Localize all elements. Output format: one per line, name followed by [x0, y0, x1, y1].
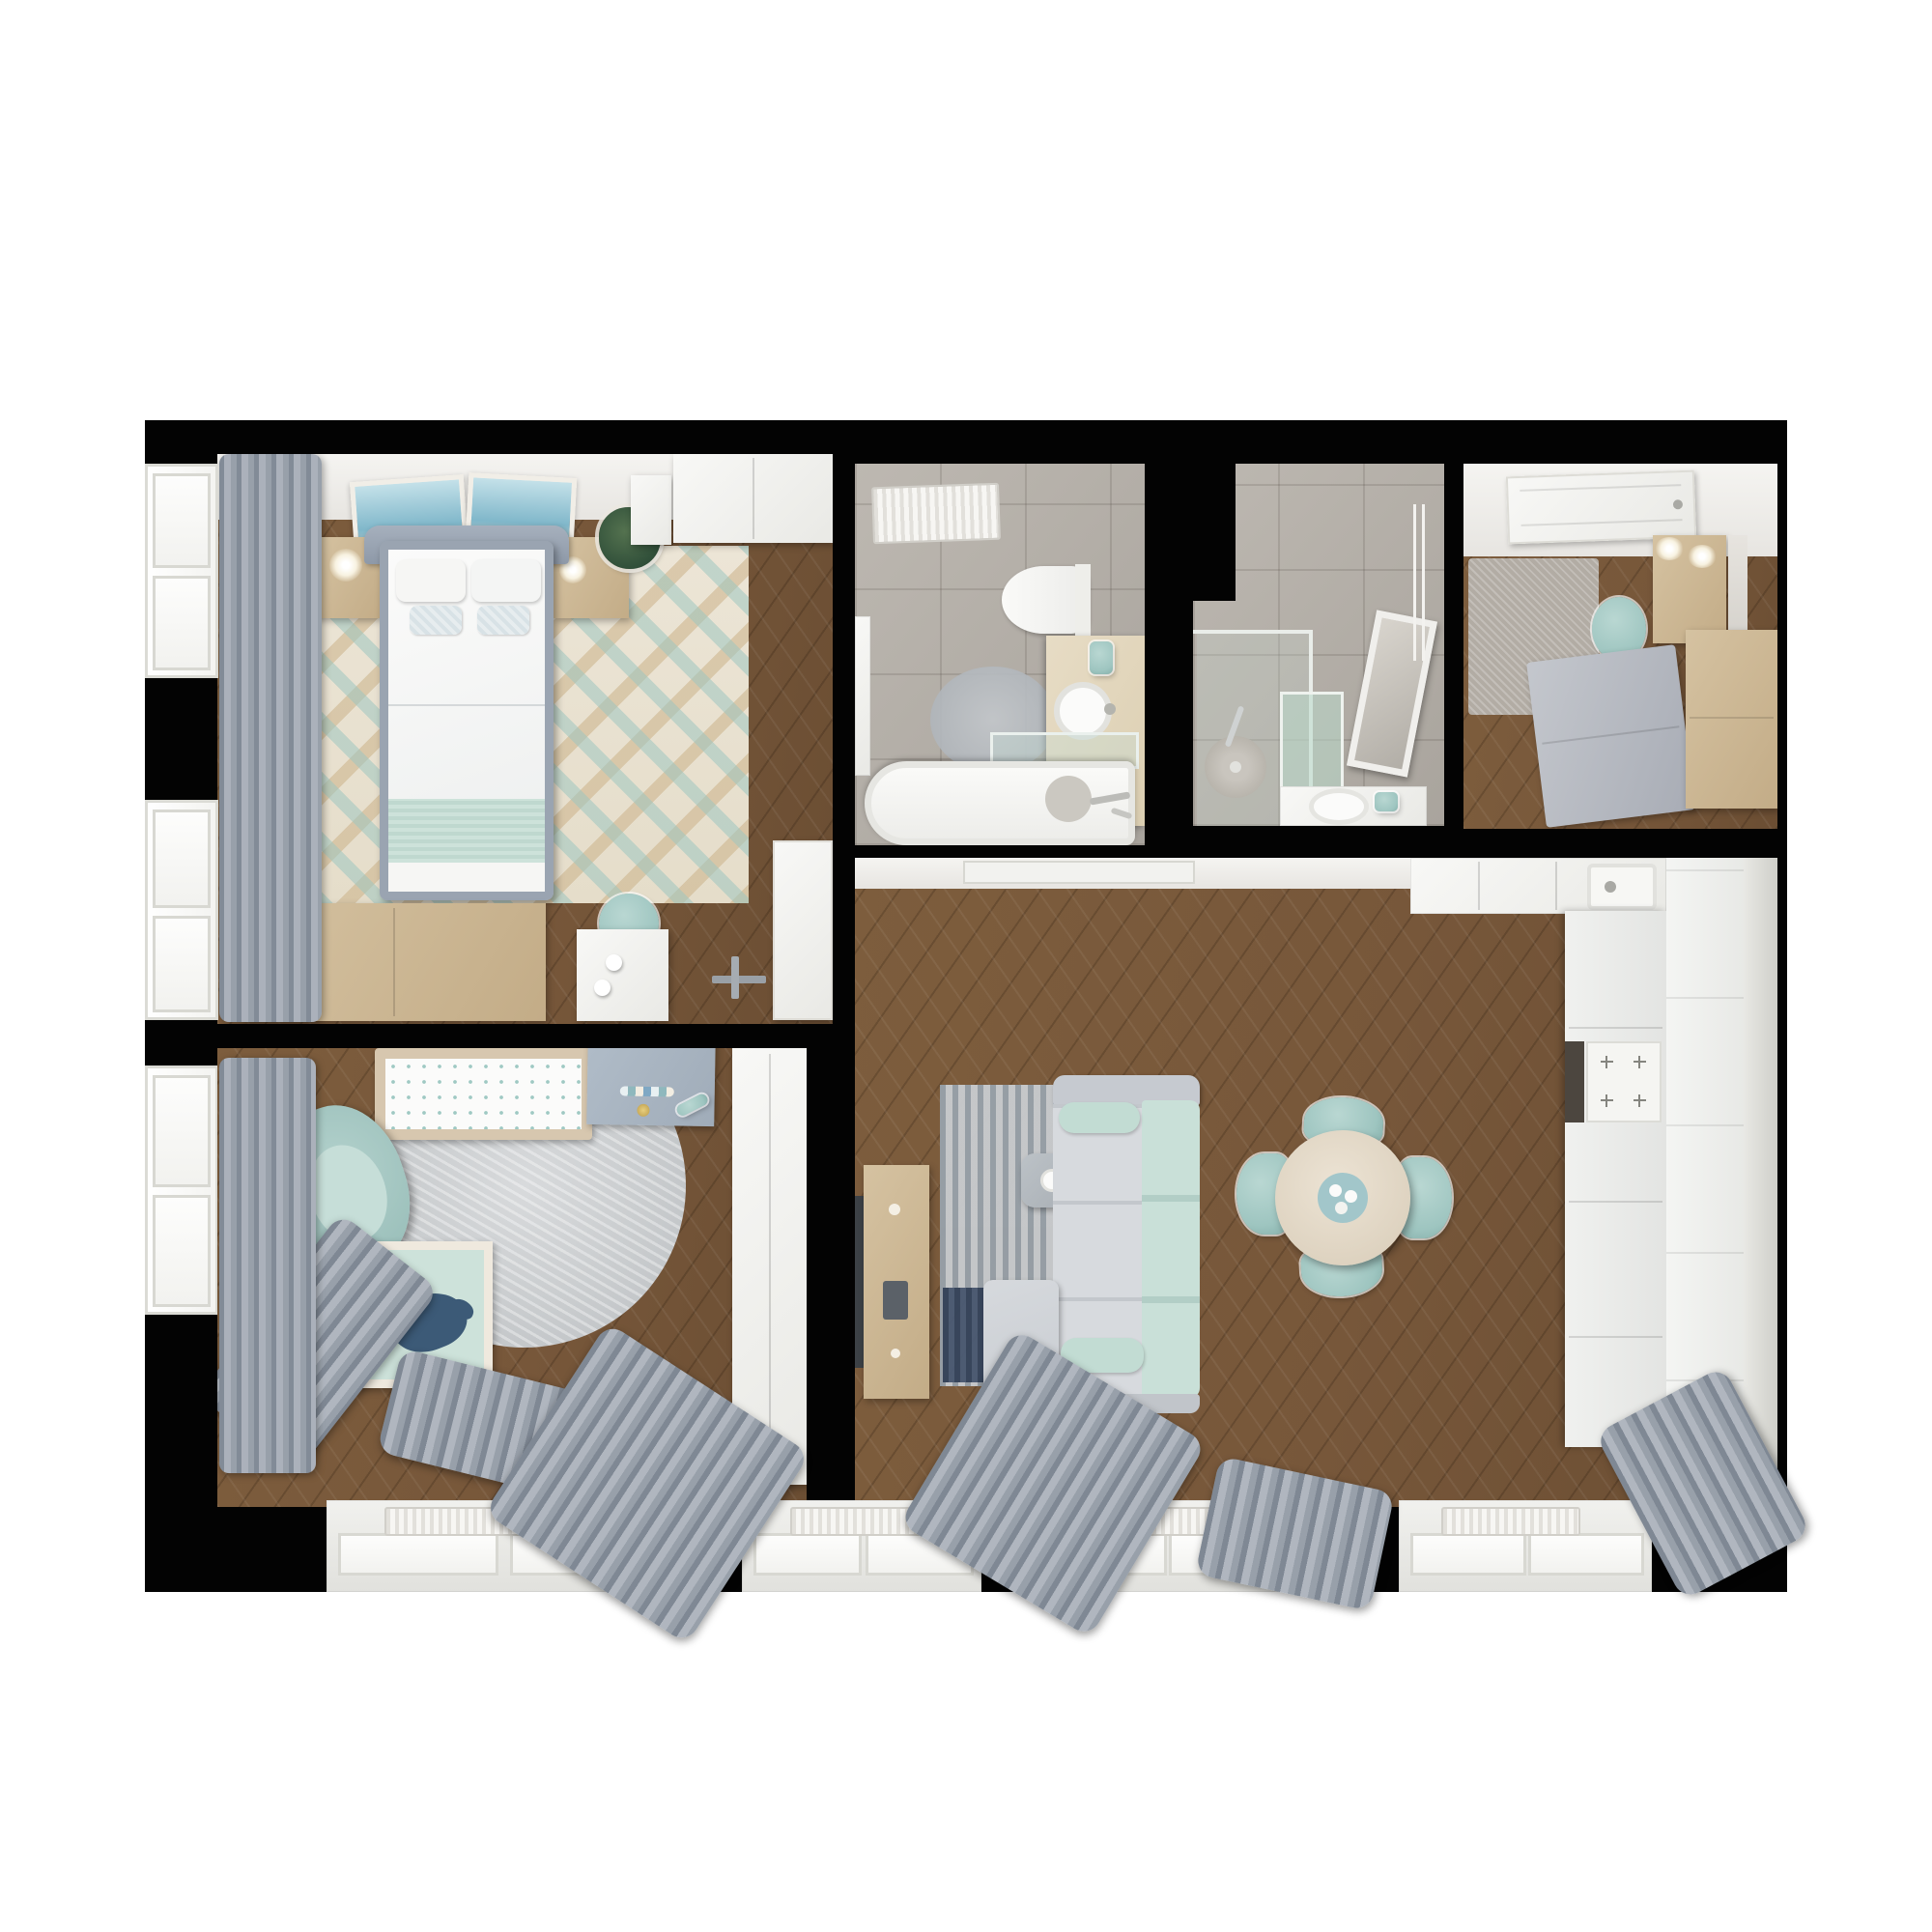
door-handle: [712, 976, 766, 983]
pillow: [396, 559, 466, 602]
counter-seam: [1478, 862, 1480, 910]
window-glass: [1528, 1533, 1644, 1576]
kitchen-right-counter: [1565, 911, 1666, 1447]
changing-desk: [586, 1048, 716, 1126]
window-glass: [1410, 1533, 1526, 1576]
ceiling-vent: [963, 861, 1195, 884]
bed-foot-fold: [388, 863, 545, 892]
sofa-mint-back-cushions: [1142, 1100, 1200, 1398]
pillow: [471, 559, 541, 602]
duvet-seam: [388, 704, 545, 706]
window-glass: [153, 473, 211, 568]
tub-faucet: [1090, 791, 1131, 805]
shower-room: [1193, 464, 1444, 826]
mint-bolster-pillow: [1059, 1102, 1140, 1133]
floor-plan-render: [0, 0, 1932, 1932]
oven: [1565, 1041, 1584, 1122]
bedroom-window-lower: [145, 800, 218, 1020]
wardrobe-wall-lamp: [1688, 545, 1717, 568]
teal-towel: [1375, 792, 1398, 811]
window-glass: [153, 1075, 211, 1187]
entry-door-knob: [1673, 499, 1683, 509]
bedroom-desk: [577, 929, 668, 1021]
nightstand-lamp-left: [329, 549, 362, 582]
crib: [375, 1048, 592, 1140]
counter-seam: [1569, 1201, 1662, 1203]
cup: [1329, 1184, 1342, 1197]
mint-throw-blanket: [388, 799, 545, 863]
burner: [1598, 1092, 1615, 1109]
radiator: [1441, 1507, 1580, 1536]
bedroom-closet: [631, 475, 671, 545]
teal-towel: [1090, 641, 1113, 674]
window-glass: [153, 810, 211, 908]
bedroom-window-upper: [145, 464, 218, 678]
teal-toy: [675, 1093, 710, 1118]
kitchen-faucet: [1605, 881, 1616, 893]
bathroom-door-frame: [855, 616, 870, 776]
rain-shower-head: [1205, 736, 1266, 798]
desk-knob: [594, 980, 611, 996]
candle: [889, 1204, 900, 1215]
window-glass: [338, 1533, 498, 1576]
hallway: [1463, 464, 1777, 829]
cooktop: [1586, 1041, 1662, 1122]
tv-console: [864, 1165, 929, 1399]
cup: [1335, 1202, 1348, 1214]
counter-seam: [1569, 1027, 1662, 1029]
window-glass: [153, 916, 211, 1012]
candle: [891, 1349, 900, 1358]
kids-room-window-left: [145, 1065, 218, 1315]
desk-knob: [606, 954, 622, 971]
burner: [1598, 1053, 1615, 1070]
corridor-cabinet-seam: [753, 458, 754, 539]
shower-room-sink: [1309, 788, 1369, 825]
counter-seam: [1555, 862, 1557, 910]
kitchen-sink: [1587, 864, 1657, 910]
towel-radiator: [871, 483, 1001, 545]
shower-head-center: [1230, 761, 1241, 773]
window-glass: [153, 1195, 211, 1307]
bathroom: [855, 464, 1145, 845]
cabinet-seam: [1690, 717, 1774, 719]
hallway-wood-cabinet: [1686, 630, 1777, 809]
gold-knob: [637, 1104, 649, 1117]
tv: [855, 1196, 864, 1368]
bedroom-curtain-left: [219, 454, 322, 1022]
wardrobe-seam: [769, 1054, 771, 1479]
tub-drain-disc: [1045, 776, 1092, 822]
cup: [1345, 1190, 1357, 1203]
towel-rail: [1413, 504, 1425, 661]
decor-object: [883, 1281, 908, 1320]
door-handle: [731, 956, 739, 999]
kids-curtain-left: [219, 1058, 316, 1473]
window-glass: [153, 576, 211, 670]
bedroom: [217, 454, 833, 1024]
double-bed: [380, 541, 554, 900]
counter-seam: [1569, 1336, 1662, 1338]
table-teal-placemat: [1318, 1173, 1368, 1223]
vessel-sink: [1054, 682, 1112, 740]
dresser-seam: [393, 908, 395, 1016]
kitchen-side-wall: [1744, 858, 1777, 1507]
bedroom-door-leaf: [773, 840, 833, 1020]
bathtub: [865, 761, 1135, 845]
round-dining-table: [1275, 1130, 1410, 1265]
toilet-cistern: [1075, 564, 1091, 636]
corner-sofa: [1053, 1075, 1200, 1413]
entry-door-panel-line: [1521, 519, 1683, 526]
entry-door-panel-line: [1520, 484, 1681, 492]
tub-faucet-handle: [1111, 808, 1133, 820]
sink-faucet: [1104, 703, 1116, 715]
burner: [1631, 1092, 1648, 1109]
wardrobe-wall-lamp: [1655, 537, 1684, 560]
gray-sideboard: [1526, 644, 1695, 828]
accent-pillow: [477, 606, 529, 635]
sideboard-seam: [1542, 725, 1679, 744]
burner: [1631, 1053, 1648, 1070]
toy-garland: [620, 1086, 674, 1096]
entry-door: [1506, 470, 1696, 545]
toilet: [1002, 566, 1087, 634]
window-glass: [753, 1533, 862, 1576]
accent-pillow: [410, 606, 462, 635]
shower-room-wall-notch: [1193, 464, 1236, 601]
